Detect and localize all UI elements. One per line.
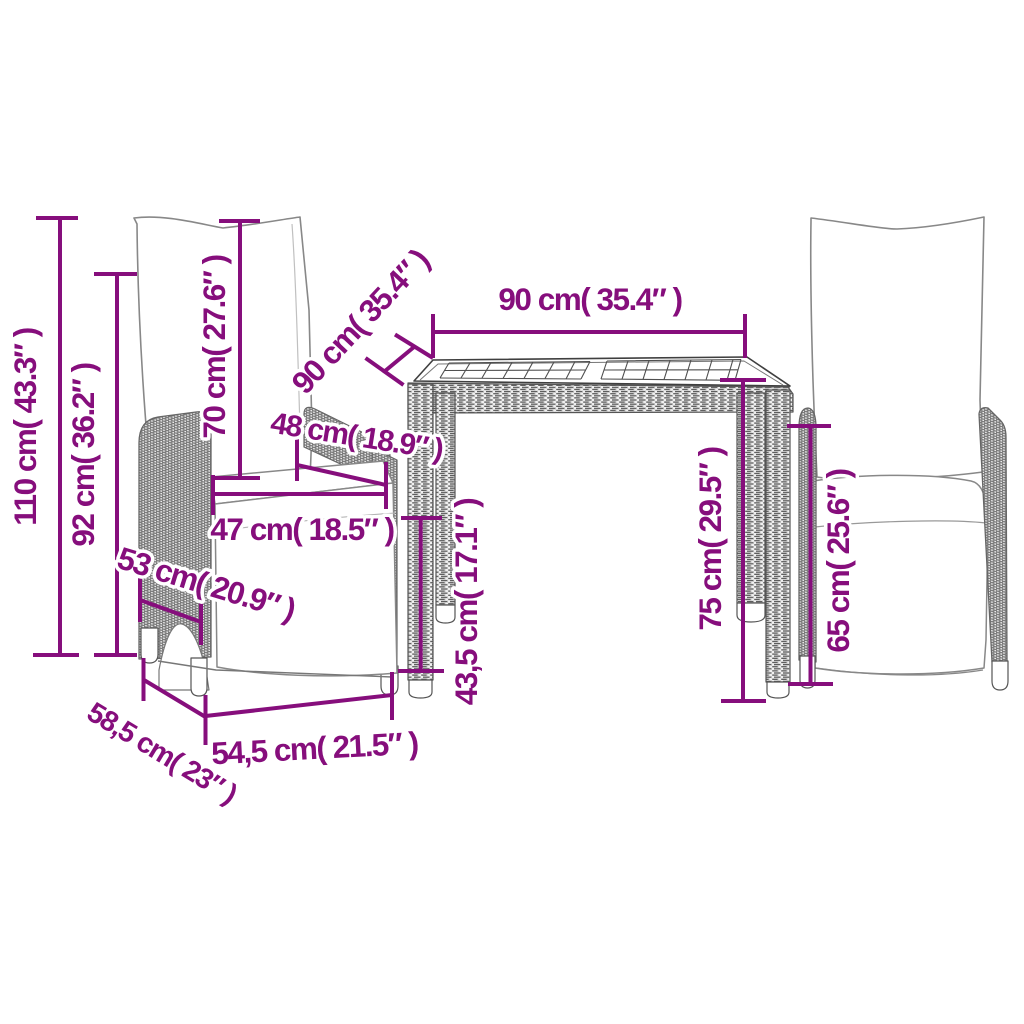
svg-text:43,5 cm( 17.1″ ): 43,5 cm( 17.1″ ) <box>448 499 484 705</box>
svg-text:92 cm( 36.2″ ): 92 cm( 36.2″ ) <box>65 363 101 546</box>
svg-text:65 cm( 25.6″ ): 65 cm( 25.6″ ) <box>820 469 856 652</box>
svg-text:75 cm( 29.5″ ): 75 cm( 29.5″ ) <box>692 447 728 630</box>
svg-text:110 cm( 43.3″ ): 110 cm( 43.3″ ) <box>7 328 43 525</box>
svg-text:47 cm( 18.5″ ): 47 cm( 18.5″ ) <box>210 511 393 547</box>
svg-text:70 cm( 27.6″ ): 70 cm( 27.6″ ) <box>196 255 232 438</box>
svg-text:90 cm( 35.4″ ): 90 cm( 35.4″ ) <box>498 281 681 317</box>
